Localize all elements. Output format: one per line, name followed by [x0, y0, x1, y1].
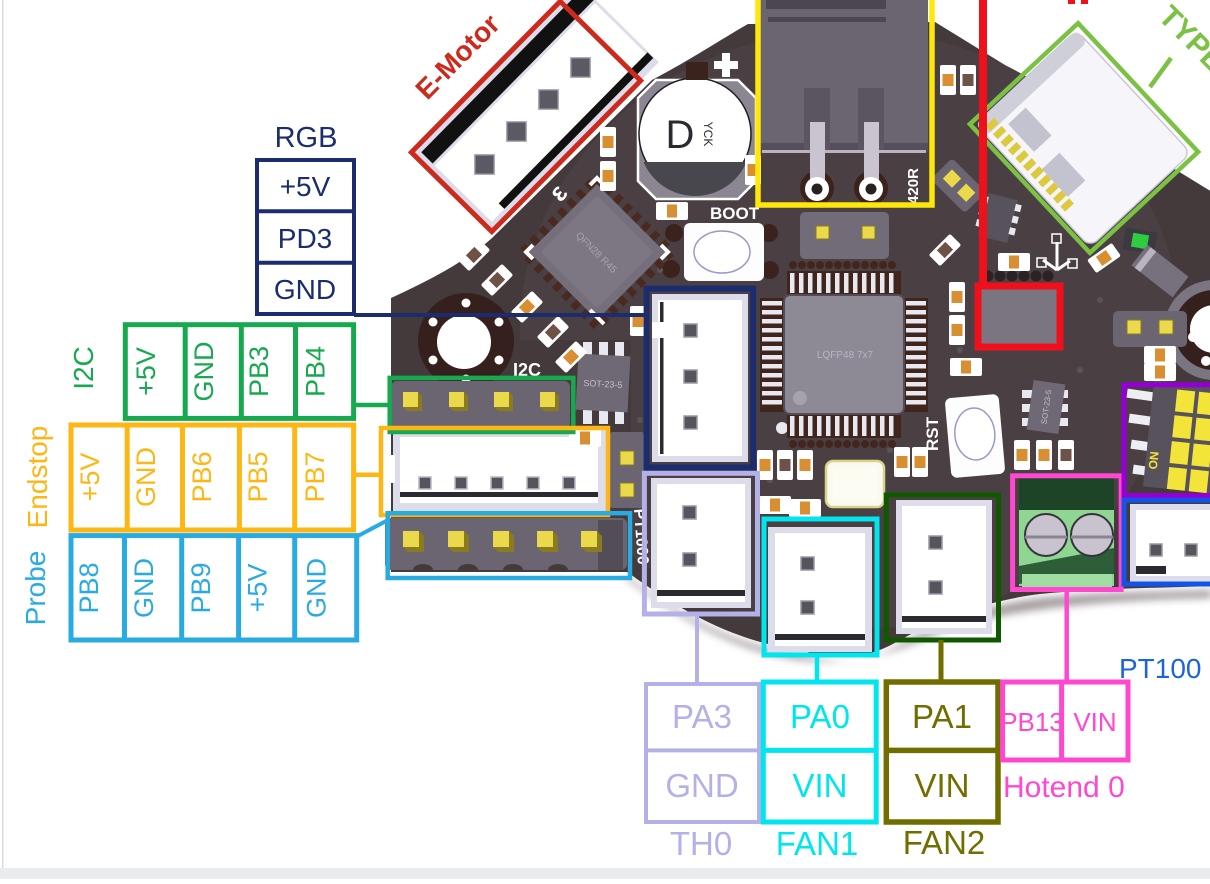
svg-text:PB13: PB13 [1000, 707, 1064, 737]
svg-text:GND: GND [274, 274, 336, 305]
svg-text:PA1: PA1 [912, 698, 972, 735]
svg-text:+5V: +5V [131, 347, 161, 396]
svg-text:PD3: PD3 [278, 223, 332, 254]
svg-text:PB4: PB4 [301, 346, 331, 397]
svg-text:D: D [666, 113, 695, 157]
svg-text:YCK: YCK [701, 122, 715, 147]
svg-text:VIN: VIN [914, 767, 969, 804]
svg-text:VIN: VIN [792, 767, 847, 804]
svg-text:FAN1: FAN1 [776, 825, 859, 862]
svg-text:RST: RST [923, 416, 942, 451]
svg-text:+5V: +5V [280, 171, 331, 202]
svg-text:SOT-23-5: SOT-23-5 [583, 378, 622, 390]
svg-text:PB6: PB6 [187, 451, 217, 502]
svg-text:PT100 or: PT100 or [1119, 653, 1210, 684]
svg-text:ON: ON [1146, 451, 1162, 470]
svg-text:GND: GND [129, 558, 159, 618]
svg-text:Hotend 0: Hotend 0 [1003, 771, 1125, 804]
svg-text:PB7: PB7 [300, 451, 330, 502]
svg-text:VIN: VIN [1073, 707, 1116, 737]
svg-text:PB3: PB3 [244, 346, 274, 397]
svg-text:PA0: PA0 [790, 698, 850, 735]
svg-text:GND: GND [302, 558, 332, 618]
svg-text:+5V: +5V [75, 453, 105, 502]
svg-text:PB8: PB8 [74, 562, 104, 613]
svg-text:PB5: PB5 [243, 451, 273, 502]
svg-text:RGB: RGB [275, 122, 338, 154]
svg-text:LQFP48 7x7: LQFP48 7x7 [817, 350, 874, 361]
svg-text:PA3: PA3 [672, 698, 732, 735]
svg-text:Probe: Probe [20, 551, 51, 626]
svg-text:GND: GND [131, 447, 161, 507]
svg-text:GND: GND [665, 767, 738, 804]
svg-text:PB9: PB9 [186, 562, 216, 613]
svg-text:BOOT: BOOT [710, 204, 760, 223]
svg-text:+5V: +5V [243, 564, 273, 613]
svg-text:TH0: TH0 [670, 825, 732, 862]
svg-text:FAN2: FAN2 [903, 824, 986, 861]
svg-text:420R: 420R [905, 168, 922, 204]
svg-text:Endstop: Endstop [22, 426, 53, 529]
svg-text:GND: GND [189, 342, 219, 402]
svg-text:I2C: I2C [68, 346, 99, 390]
